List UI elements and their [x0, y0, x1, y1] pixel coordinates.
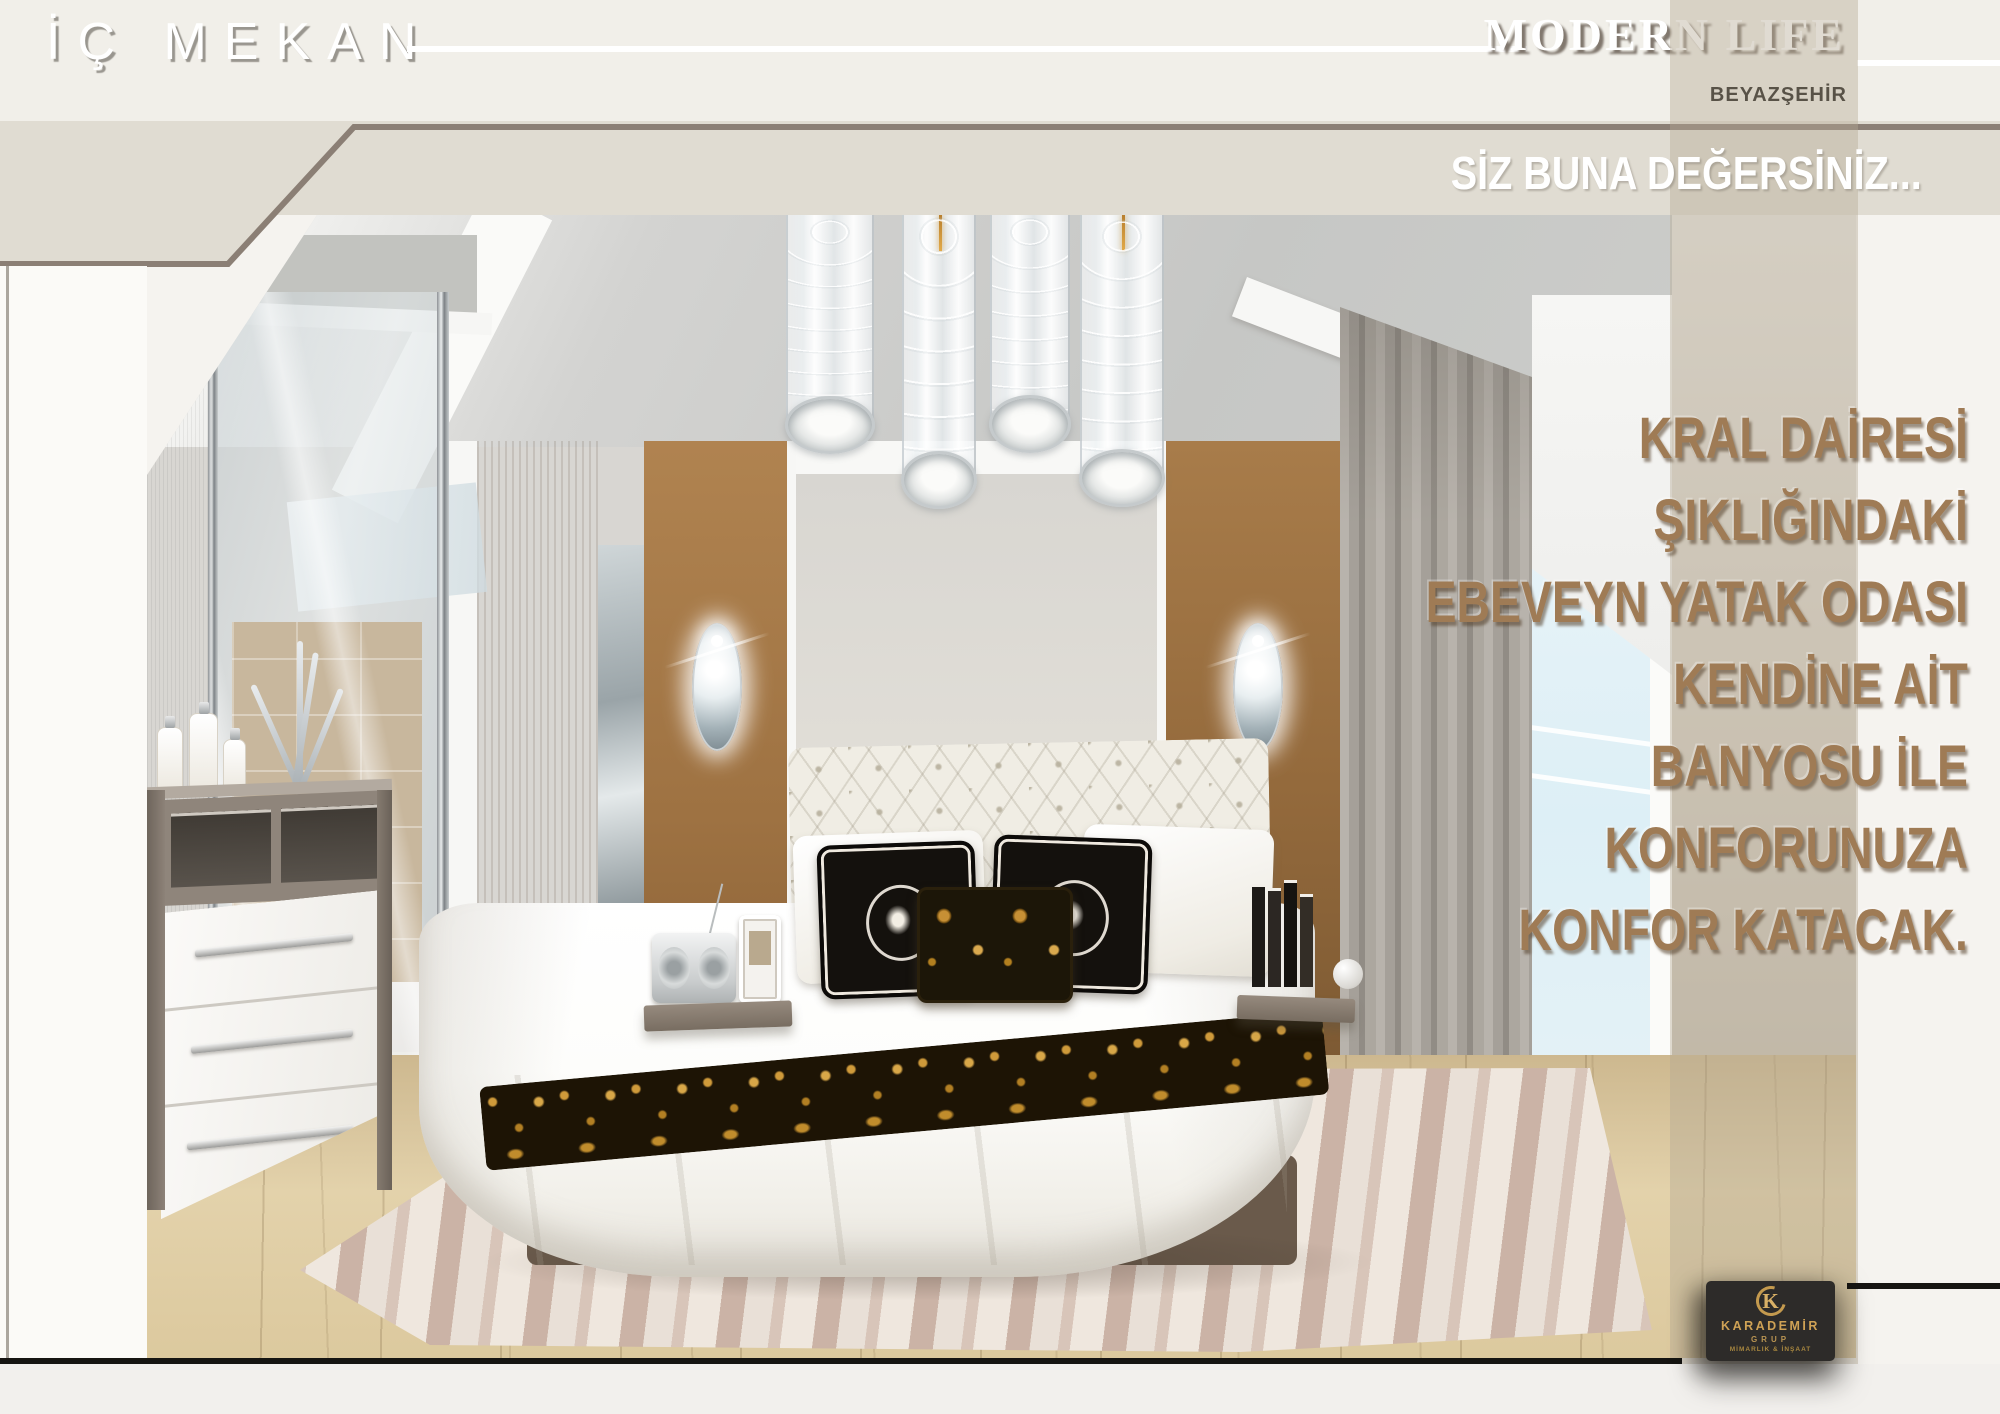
dresser-frame	[377, 790, 392, 1190]
message-line: ŞIKLIĞINDAKİ	[1426, 480, 1968, 562]
message-line: KRAL DAİRESİ	[1426, 398, 1968, 480]
company-tagline: MİMARLIK & İNŞAAT	[1730, 1346, 1812, 1353]
wall-sconce-left	[692, 623, 742, 751]
banner-tagline: SİZ BUNA DEĞERSİNİZ...	[1451, 146, 1922, 200]
perfume-bottle	[189, 713, 218, 793]
perfume-bottle	[157, 727, 183, 793]
message-line: BANYOSU İLE	[1426, 726, 1968, 808]
brochure-page: İÇ MEKAN MODERN LIFE BEYAZŞEHİR SİZ BUNA…	[0, 0, 2000, 1414]
left-accent-line	[6, 266, 9, 1360]
dresser-shelf	[161, 790, 392, 906]
message-line: KONFORUNUZA	[1426, 808, 1968, 890]
silver-sculpture	[265, 623, 335, 791]
karademir-monogram-icon: K	[1756, 1286, 1786, 1316]
left-margin	[0, 266, 147, 1358]
message-line: EBEVEYN YATAK ODASI	[1426, 562, 1968, 644]
company-group: GRUP	[1751, 1335, 1790, 1344]
right-rule	[1847, 1283, 2000, 1289]
nightstand-right	[1237, 995, 1356, 1023]
wall-sconce-right	[1233, 623, 1283, 751]
radio	[652, 933, 736, 1003]
pillow-gold-lumbar	[917, 887, 1073, 1003]
pendant-lamp	[786, 215, 874, 430]
dresser-frame	[147, 790, 165, 1210]
pendant-lamp	[1080, 215, 1164, 483]
bottom-rule	[0, 1358, 1682, 1364]
message-line: KONFOR KATACAK.	[1426, 890, 1968, 972]
message-line: KENDİNE AİT	[1426, 644, 1968, 726]
picture-frame	[739, 915, 781, 1003]
header-rule-right	[1857, 60, 2000, 66]
nightstand-left	[644, 1000, 793, 1031]
pendant-lamp	[902, 215, 976, 485]
brand-title: İÇ MEKAN	[46, 12, 433, 72]
karademir-logo: K KARADEMİR GRUP MİMARLIK & İNŞAAT	[1706, 1281, 1835, 1361]
company-name: KARADEMİR	[1721, 1319, 1820, 1333]
message-block: KRAL DAİRESİ ŞIKLIĞINDAKİ EBEVEYN YATAK …	[1290, 398, 1968, 972]
footer-band	[0, 1364, 2000, 1414]
pendant-lamp	[990, 215, 1070, 429]
